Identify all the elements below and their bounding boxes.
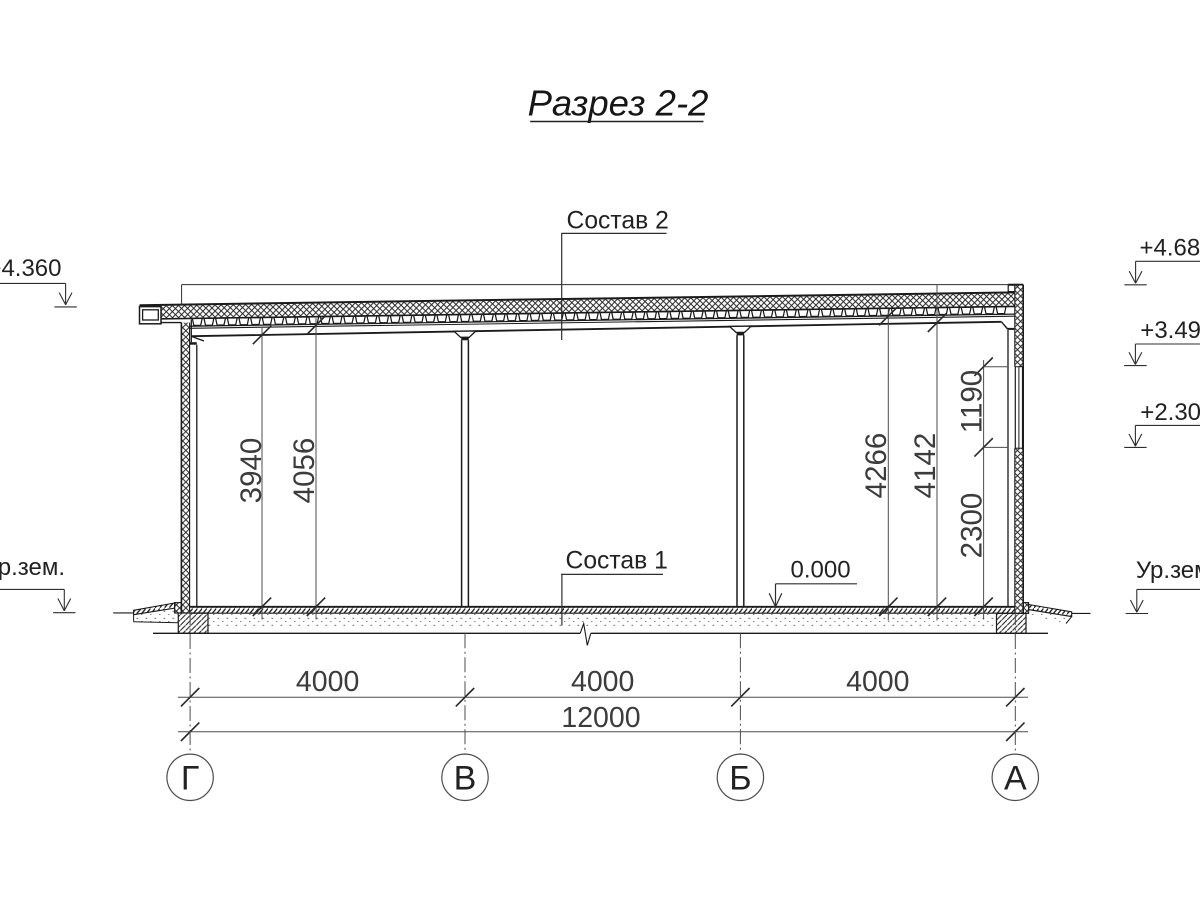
svg-text:Ур.зем.: Ур.зем. — [1136, 557, 1200, 584]
svg-text:4142: 4142 — [909, 433, 942, 499]
svg-text:2300: 2300 — [955, 493, 988, 559]
svg-text:0.000: 0.000 — [791, 557, 851, 584]
svg-text:Состав 1: Состав 1 — [566, 548, 668, 575]
svg-text:4000: 4000 — [296, 666, 359, 698]
svg-text:Состав 2: Состав 2 — [567, 208, 669, 235]
svg-text:+4.360: +4.360 — [0, 255, 62, 282]
svg-text:3940: 3940 — [235, 438, 268, 504]
svg-text:Г: Г — [181, 760, 199, 798]
svg-text:Разрез 2-2: Разрез 2-2 — [528, 83, 709, 124]
svg-text:4000: 4000 — [846, 666, 909, 698]
svg-text:12000: 12000 — [561, 702, 640, 734]
svg-text:Ур.зем.: Ур.зем. — [0, 554, 65, 581]
svg-text:4056: 4056 — [288, 438, 321, 504]
svg-text:А: А — [1004, 760, 1027, 798]
svg-text:В: В — [454, 760, 477, 798]
svg-text:+3.490: +3.490 — [1140, 317, 1200, 344]
svg-text:4000: 4000 — [571, 666, 634, 698]
svg-text:+2.300: +2.300 — [1140, 399, 1200, 426]
svg-text:4266: 4266 — [860, 433, 893, 499]
svg-text:+4.680: +4.680 — [1140, 235, 1200, 262]
svg-text:1190: 1190 — [955, 370, 988, 433]
svg-text:Б: Б — [729, 760, 751, 798]
